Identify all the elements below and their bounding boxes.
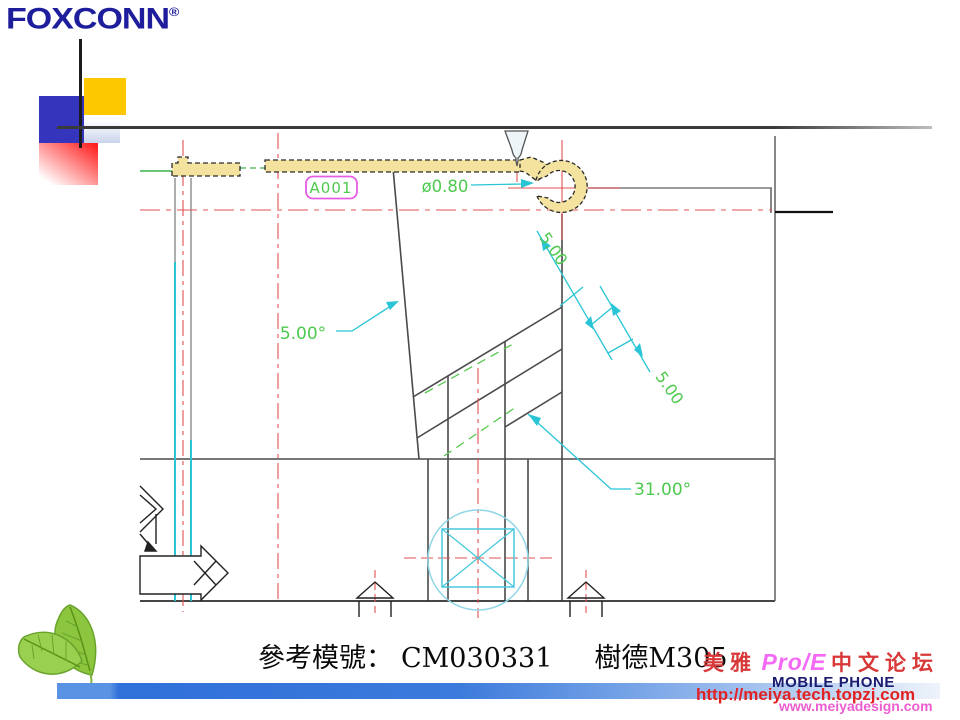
stair-angle-text: 31.00° [634, 480, 691, 500]
stair-edge-1 [413, 307, 562, 397]
watermark-brand-cn-left: 美雅 [703, 651, 757, 675]
watermark-brand-en: Pro/E [761, 649, 826, 675]
step-dim-rail-2 [600, 286, 650, 372]
red-centerlines [140, 131, 772, 618]
draft-angle-leader [336, 302, 397, 331]
dimension-lines [336, 184, 650, 489]
dimension-arrowheads [386, 179, 643, 426]
model-number: CM030331 [401, 643, 552, 674]
part-left-segment [172, 157, 240, 176]
flow-arrow [140, 546, 228, 600]
dimension-texts: A001 ø0.80 5.00° 5.00 5.00 31.00° [280, 177, 691, 500]
watermark-url-2: www.meiyadesign.com [779, 699, 933, 713]
mold-structure-lines [140, 136, 833, 601]
footer-caption: 參考模號：CM030331樹德M305 [258, 636, 728, 675]
draft-slant-edge [393, 168, 419, 459]
cad-drawing: A001 ø0.80 5.00° 5.00 5.00 31.00° [0, 0, 960, 720]
step-depth-2-text: 5.00 [652, 368, 688, 408]
green-reference-lines [140, 168, 516, 456]
step-depth-1-text: 5.00 [536, 229, 572, 269]
reference-label: 參考模號： [258, 643, 393, 674]
watermark-brand-cn-right: 中文论坛 [831, 651, 939, 675]
gate-dim-line [471, 184, 523, 185]
stair-angle-leader [528, 414, 631, 489]
watermark-brand: 美雅 Pro/E 中文论坛 [703, 651, 939, 674]
deco-horizontal-line [57, 126, 932, 129]
balloon-label: A001 [310, 179, 353, 197]
part-strip [265, 160, 522, 172]
left-arrow-symbols [140, 486, 228, 600]
stair-edge-3 [505, 392, 562, 427]
draft-angle-text: 5.00° [280, 324, 326, 344]
deco-vertical-line [79, 39, 82, 148]
gate-diameter-text: ø0.80 [422, 177, 469, 196]
